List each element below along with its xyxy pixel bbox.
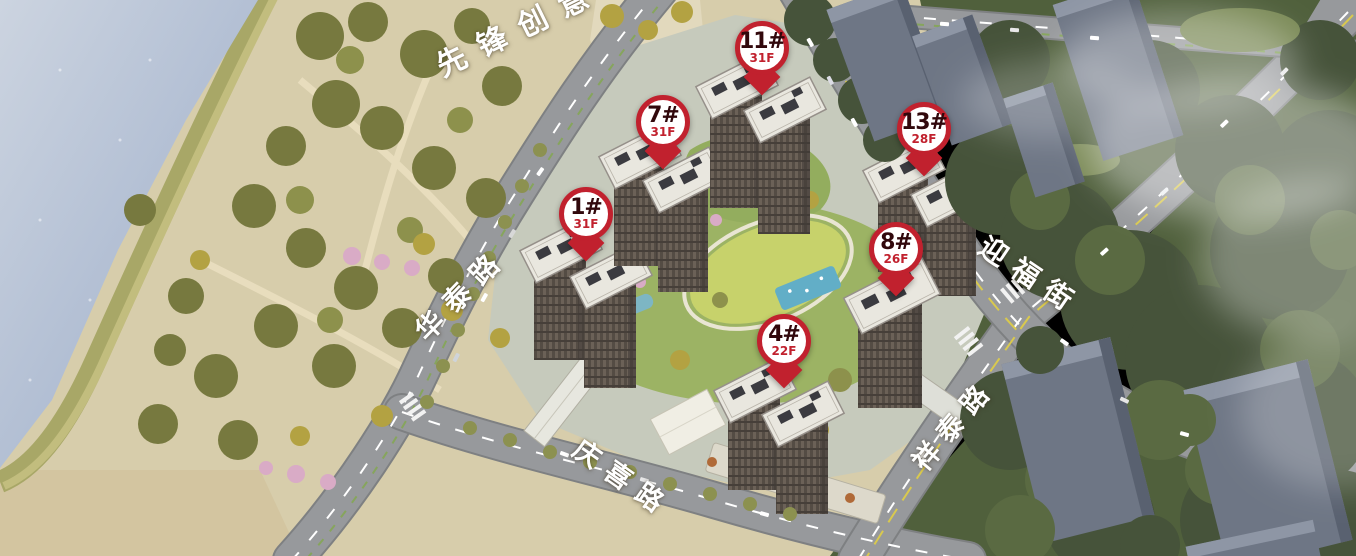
- building-pin-1[interactable]: 1# 31F: [558, 187, 614, 265]
- pin-floor-count: 22F: [772, 345, 797, 358]
- pin-circle: 13# 28F: [897, 102, 951, 156]
- pin-floor-count: 26F: [884, 253, 909, 266]
- sandy-bank: [0, 470, 300, 556]
- residential-aerial-map: 先锋创意 华泰路 迎福街 祥泰路 庆喜路 1# 31F 4# 22F 7# 31…: [0, 0, 1356, 556]
- aerial-site-render: [0, 0, 1356, 556]
- building-pin-8[interactable]: 8# 26F: [868, 222, 924, 300]
- pin-building-number: 1#: [570, 198, 602, 218]
- pin-building-number: 13#: [901, 113, 947, 133]
- pin-building-number: 11#: [739, 32, 785, 52]
- building-pin-7[interactable]: 7# 31F: [635, 95, 691, 173]
- pin-circle: 1# 31F: [559, 187, 613, 241]
- pin-floor-count: 31F: [651, 126, 676, 139]
- pin-building-number: 4#: [768, 325, 800, 345]
- pin-circle: 11# 31F: [735, 21, 789, 75]
- building-pin-13[interactable]: 13# 28F: [896, 102, 952, 180]
- pin-building-number: 7#: [647, 106, 679, 126]
- pin-floor-count: 31F: [750, 52, 775, 65]
- pin-building-number: 8#: [880, 233, 912, 253]
- pin-floor-count: 31F: [574, 218, 599, 231]
- pin-circle: 4# 22F: [757, 314, 811, 368]
- building-pin-11[interactable]: 11# 31F: [734, 21, 790, 99]
- pin-circle: 7# 31F: [636, 95, 690, 149]
- pin-circle: 8# 26F: [869, 222, 923, 276]
- building-pin-4[interactable]: 4# 22F: [756, 314, 812, 392]
- pin-floor-count: 28F: [912, 133, 937, 146]
